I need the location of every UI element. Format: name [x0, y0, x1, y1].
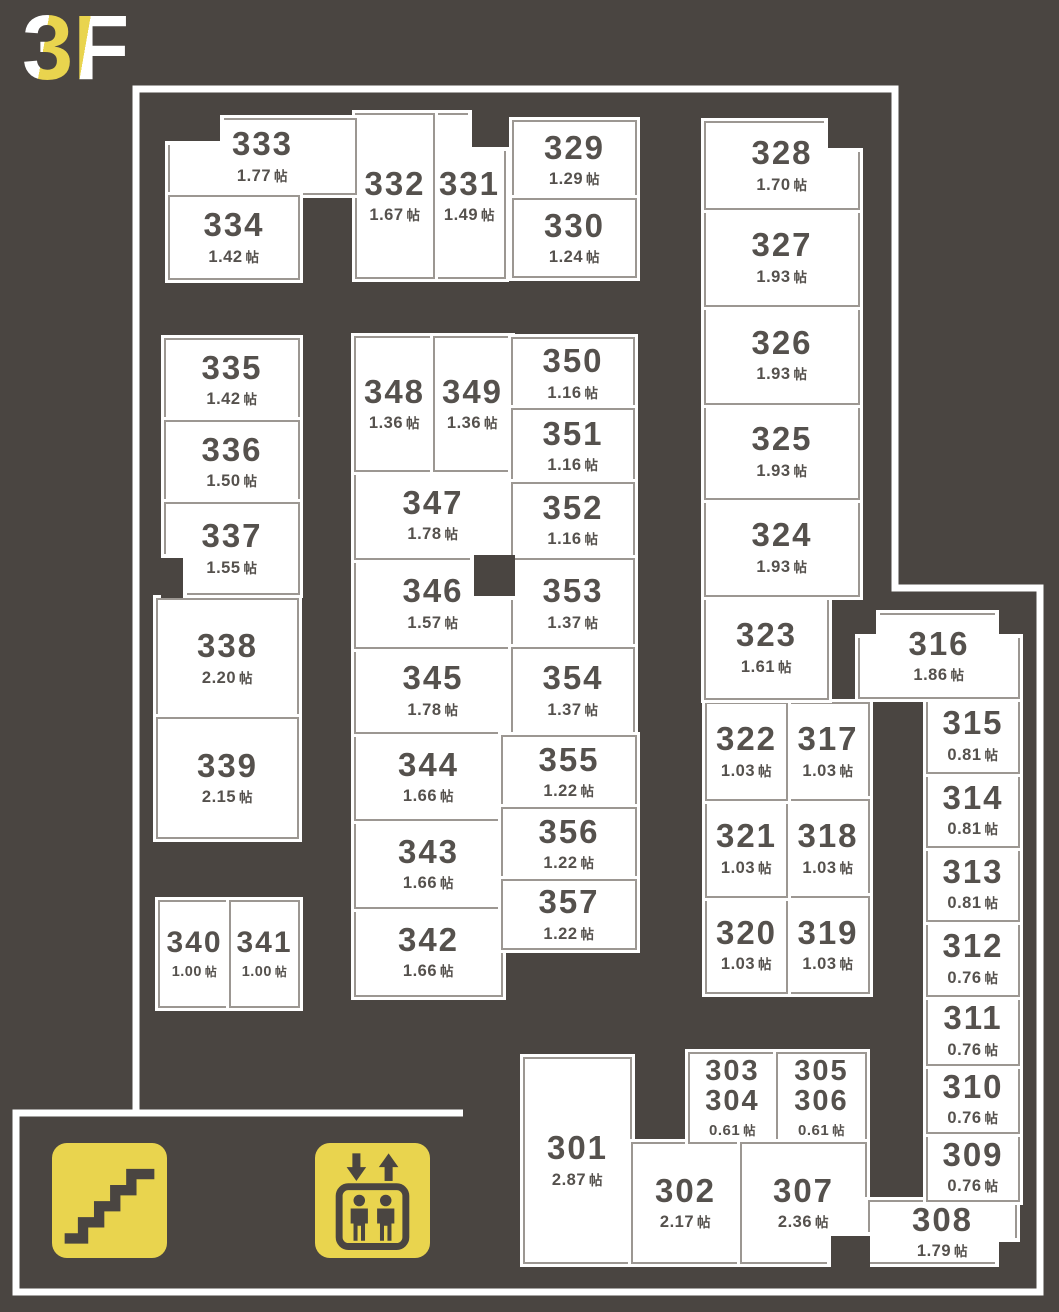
room-size-value: 0.76	[947, 1177, 981, 1196]
room-357: 357 1.22帖	[503, 881, 635, 948]
room-size-value: 1.86	[913, 666, 947, 685]
room-size-value: 2.17	[660, 1213, 694, 1232]
room-size: 1.24帖	[549, 246, 600, 267]
room-size-unit: 帖	[589, 1169, 603, 1189]
room-number: 323	[736, 618, 797, 652]
room-size: 1.66帖	[403, 785, 454, 806]
room-size-value: 1.49	[444, 206, 478, 225]
room-size-unit: 帖	[840, 857, 854, 877]
room-size: 1.78帖	[407, 523, 458, 544]
room-325: 325 1.93帖	[706, 405, 858, 498]
room-size: 1.67帖	[369, 204, 420, 225]
room-size: 2.17帖	[660, 1211, 711, 1232]
room-size: 2.20帖	[202, 667, 253, 688]
room-size-value: 1.66	[403, 787, 437, 806]
room-size-unit: 帖	[985, 1175, 999, 1195]
room-number: 310	[942, 1070, 1003, 1104]
room-number: 339	[197, 749, 258, 783]
room-number: 355	[538, 743, 599, 777]
room-size-value: 1.03	[721, 762, 755, 781]
room-size: 1.00帖	[172, 963, 218, 980]
room-size-unit: 帖	[244, 388, 258, 408]
room-number: 324	[751, 518, 812, 552]
room-size: 1.79帖	[917, 1240, 968, 1261]
room-number-secondary: 306	[794, 1087, 848, 1117]
room-327: 327 1.93帖	[706, 210, 858, 305]
room-size-unit: 帖	[440, 872, 454, 892]
room-size: 1.37帖	[547, 699, 598, 720]
room-size-unit: 帖	[794, 556, 808, 576]
room-344: 344 1.66帖	[356, 735, 501, 819]
room-size-unit: 帖	[586, 246, 600, 266]
room-number: 338	[197, 629, 258, 663]
room-size: 1.36帖	[447, 412, 498, 433]
room-size-value: 1.66	[403, 962, 437, 981]
room-size-unit: 帖	[985, 967, 999, 987]
room-number: 314	[942, 781, 1003, 815]
room-size-unit: 帖	[586, 168, 600, 188]
room-number: 309	[942, 1138, 1003, 1172]
room-size-value: 2.36	[778, 1213, 812, 1232]
room-size-unit: 帖	[758, 760, 772, 780]
room-number: 352	[542, 491, 603, 525]
room-size-value: 1.22	[543, 854, 577, 873]
room-number: 356	[538, 815, 599, 849]
room-size-value: 1.70	[756, 176, 790, 195]
room-size: 1.86帖	[913, 664, 964, 685]
room-number: 308	[912, 1203, 973, 1237]
room-size-value: 1.16	[547, 456, 581, 475]
room-336: 336 1.50帖	[166, 422, 298, 502]
room-337-notch-bl	[161, 554, 187, 598]
room-size-unit: 帖	[985, 892, 999, 912]
room-size-value: 1.42	[208, 248, 242, 267]
room-size: 1.37帖	[547, 612, 598, 633]
room-number: 315	[942, 706, 1003, 740]
room-number: 347	[402, 486, 463, 520]
room-size-unit: 帖	[585, 382, 599, 402]
room-size: 1.78帖	[407, 699, 458, 720]
room-size-value: 1.36	[447, 414, 481, 433]
room-size-value: 2.15	[202, 788, 236, 807]
room-size-unit: 帖	[585, 612, 599, 632]
room-size: 1.57帖	[407, 612, 458, 633]
room-size-unit: 帖	[840, 760, 854, 780]
room-size-value: 1.66	[403, 874, 437, 893]
room-size-value: 0.61	[798, 1122, 829, 1139]
room-316-notch-tl	[855, 610, 880, 638]
room-size-unit: 帖	[239, 667, 253, 687]
room-332: 332 1.67帖	[357, 115, 433, 277]
room-number: 327	[751, 228, 812, 262]
room-333: 333 1.77帖	[170, 120, 355, 193]
room-size-value: 1.03	[721, 859, 755, 878]
room-size: 0.76帖	[947, 1107, 998, 1128]
room-size: 1.93帖	[756, 363, 807, 384]
room-size: 0.76帖	[947, 967, 998, 988]
room-size: 1.16帖	[547, 454, 598, 475]
room-size: 2.87帖	[552, 1169, 603, 1190]
room-size-unit: 帖	[985, 744, 999, 764]
room-size: 1.00帖	[242, 963, 288, 980]
room-326: 326 1.93帖	[706, 307, 858, 403]
room-size-unit: 帖	[794, 460, 808, 480]
room-size-value: 1.03	[802, 859, 836, 878]
room-size-value: 0.76	[947, 1109, 981, 1128]
room-number: 344	[398, 748, 459, 782]
room-308: 308 1.79帖	[870, 1202, 1015, 1262]
room-324: 324 1.93帖	[706, 500, 858, 595]
room-size: 1.93帖	[756, 266, 807, 287]
room-size-unit: 帖	[758, 857, 772, 877]
room-302: 302 2.17帖	[633, 1144, 738, 1262]
room-number: 325	[751, 422, 812, 456]
room-346: 346 1.57帖	[356, 560, 510, 647]
room-size-value: 1.93	[756, 558, 790, 577]
room-size-unit: 帖	[840, 953, 854, 973]
room-number: 322	[716, 722, 777, 756]
room-size-unit: 帖	[585, 454, 599, 474]
room-number: 335	[201, 351, 262, 385]
room-number: 349	[442, 375, 503, 409]
stairs-icon	[52, 1143, 167, 1258]
room-size: 0.81帖	[947, 892, 998, 913]
room-315: 315 0.81帖	[928, 699, 1018, 772]
room-size-unit: 帖	[406, 412, 420, 432]
room-size-unit: 帖	[954, 1240, 968, 1260]
room-size: 1.93帖	[756, 556, 807, 577]
room-330: 330 1.24帖	[514, 200, 635, 276]
room-size-value: 1.78	[407, 525, 441, 544]
room-312: 312 0.76帖	[928, 922, 1018, 995]
room-size: 1.03帖	[721, 857, 772, 878]
room-size-value: 1.37	[547, 701, 581, 720]
room-size-value: 1.22	[543, 782, 577, 801]
room-305-306: 305 306 0.61帖	[778, 1054, 865, 1142]
room-340: 340 1.00帖	[160, 902, 229, 1006]
room-size-value: 1.93	[756, 365, 790, 384]
room-number: 337	[201, 519, 262, 553]
room-number: 353	[542, 574, 603, 608]
room-size-unit: 帖	[244, 557, 258, 577]
room-number: 311	[943, 1001, 1002, 1035]
room-number: 326	[751, 326, 812, 360]
room-number: 346	[402, 574, 463, 608]
room-316: 316 1.86帖	[860, 615, 1018, 697]
room-308-notch-br	[995, 1238, 1020, 1267]
room-number: 341	[236, 928, 292, 959]
room-size-unit: 帖	[484, 412, 498, 432]
room-number: 331	[439, 167, 500, 201]
room-size-unit: 帖	[581, 852, 595, 872]
room-size: 0.76帖	[947, 1039, 998, 1060]
room-number: 330	[544, 209, 605, 243]
room-size: 1.50帖	[206, 470, 257, 491]
room-size-unit: 帖	[407, 204, 421, 224]
room-320: 320 1.03帖	[707, 898, 786, 992]
room-size-value: 1.78	[407, 701, 441, 720]
room-size-unit: 帖	[244, 470, 258, 490]
room-size-value: 1.93	[756, 462, 790, 481]
room-size-unit: 帖	[585, 699, 599, 719]
room-size: 1.42帖	[208, 246, 259, 267]
room-size: 1.03帖	[721, 953, 772, 974]
room-size: 1.93帖	[756, 460, 807, 481]
room-341: 341 1.00帖	[231, 902, 298, 1006]
room-size: 2.15帖	[202, 786, 253, 807]
room-number: 351	[542, 417, 603, 451]
room-size-unit: 帖	[815, 1211, 829, 1231]
room-347: 347 1.78帖	[356, 472, 510, 558]
room-size-unit: 帖	[778, 656, 792, 676]
room-size: 1.77帖	[237, 165, 288, 186]
room-size-unit: 帖	[481, 204, 495, 224]
room-size-unit: 帖	[246, 246, 260, 266]
room-size-unit: 帖	[585, 528, 599, 548]
room-338: 338 2.20帖	[158, 600, 297, 717]
room-size-unit: 帖	[985, 1107, 999, 1127]
room-314: 314 0.81帖	[928, 774, 1018, 846]
room-size-unit: 帖	[275, 963, 287, 980]
room-size: 0.81帖	[947, 744, 998, 765]
room-size-unit: 帖	[205, 963, 217, 980]
room-size-value: 0.81	[947, 820, 981, 839]
room-number: 348	[364, 375, 425, 409]
room-size-value: 1.03	[721, 955, 755, 974]
room-size-value: 0.81	[947, 894, 981, 913]
room-size: 2.36帖	[778, 1211, 829, 1232]
room-size-value: 1.03	[802, 955, 836, 974]
room-329: 329 1.29帖	[514, 122, 635, 198]
room-size-unit: 帖	[440, 960, 454, 980]
room-321: 321 1.03帖	[707, 801, 786, 896]
room-331-notch-tr	[468, 110, 509, 151]
room-number: 316	[908, 627, 969, 661]
room-number: 317	[797, 722, 858, 756]
room-355: 355 1.22帖	[503, 737, 635, 807]
room-319: 319 1.03帖	[788, 898, 868, 992]
room-size-unit: 帖	[794, 363, 808, 383]
room-349: 349 1.36帖	[435, 338, 510, 470]
room-size-unit: 帖	[697, 1211, 711, 1231]
room-size: 1.03帖	[802, 953, 853, 974]
room-size-unit: 帖	[445, 699, 459, 719]
room-350: 350 1.16帖	[513, 339, 633, 408]
room-337: 337 1.55帖	[166, 504, 298, 593]
room-number: 302	[655, 1174, 716, 1208]
room-331: 331 1.49帖	[435, 115, 504, 277]
room-size-value: 1.57	[407, 614, 441, 633]
room-size: 1.42帖	[206, 388, 257, 409]
room-size: 0.61帖	[709, 1121, 756, 1139]
room-size-value: 1.55	[206, 559, 240, 578]
room-356: 356 1.22帖	[503, 809, 635, 879]
room-number: 336	[201, 433, 262, 467]
room-size: 1.49帖	[444, 204, 495, 225]
room-size-value: 1.67	[369, 206, 403, 225]
room-size-value: 1.03	[802, 762, 836, 781]
room-328-notch-tr	[824, 118, 863, 152]
room-size-value: 1.37	[547, 614, 581, 633]
room-size-value: 1.61	[741, 658, 775, 677]
room-size: 0.81帖	[947, 818, 998, 839]
room-size-unit: 帖	[581, 923, 595, 943]
room-size: 1.29帖	[549, 168, 600, 189]
room-size: 1.16帖	[547, 528, 598, 549]
room-309: 309 0.76帖	[928, 1134, 1018, 1200]
room-size-unit: 帖	[440, 785, 454, 805]
room-size-value: 2.87	[552, 1171, 586, 1190]
room-size: 1.03帖	[721, 760, 772, 781]
room-number: 318	[797, 819, 858, 853]
room-number: 329	[544, 131, 605, 165]
room-size-unit: 帖	[985, 1039, 999, 1059]
room-number: 340	[166, 928, 222, 959]
room-size: 1.22帖	[543, 780, 594, 801]
room-number: 320	[716, 916, 777, 950]
room-353: 353 1.37帖	[513, 560, 633, 647]
room-size-unit: 帖	[832, 1121, 845, 1139]
room-size: 0.76帖	[947, 1175, 998, 1196]
room-size: 1.66帖	[403, 872, 454, 893]
room-size-value: 0.76	[947, 1041, 981, 1060]
room-size: 1.22帖	[543, 852, 594, 873]
room-346-notch-tr	[470, 555, 515, 600]
room-310: 310 0.76帖	[928, 1066, 1018, 1132]
room-354: 354 1.37帖	[513, 649, 633, 732]
room-size-value: 1.22	[543, 925, 577, 944]
room-number: 307	[773, 1174, 834, 1208]
room-size-unit: 帖	[581, 780, 595, 800]
room-number: 333	[232, 127, 293, 161]
room-number: 334	[203, 208, 264, 242]
room-size-value: 1.16	[547, 384, 581, 403]
room-size-unit: 帖	[985, 818, 999, 838]
room-size-unit: 帖	[743, 1121, 756, 1139]
room-size-unit: 帖	[239, 786, 253, 806]
room-number: 328	[751, 136, 812, 170]
room-size: 1.36帖	[369, 412, 420, 433]
rooms-layer: 301 2.87帖 302 2.17帖 303 304 0.61帖 305 30…	[0, 0, 1059, 1312]
room-size-value: 1.16	[547, 530, 581, 549]
room-351: 351 1.16帖	[513, 410, 633, 482]
room-number: 301	[547, 1131, 608, 1165]
room-size-value: 2.20	[202, 669, 236, 688]
room-number: 332	[364, 167, 425, 201]
room-size: 1.55帖	[206, 557, 257, 578]
room-size-value: 1.42	[206, 390, 240, 409]
room-343: 343 1.66帖	[356, 821, 501, 907]
room-number: 303	[705, 1057, 759, 1087]
room-size-value: 1.29	[549, 170, 583, 189]
room-339: 339 2.15帖	[158, 719, 297, 837]
room-number: 343	[398, 835, 459, 869]
room-size-unit: 帖	[758, 953, 772, 973]
room-size: 0.61帖	[798, 1121, 845, 1139]
room-333-notch-tl	[165, 115, 224, 145]
room-number: 354	[542, 661, 603, 695]
room-size-value: 0.61	[709, 1122, 740, 1139]
room-number: 342	[398, 923, 459, 957]
room-size-unit: 帖	[445, 523, 459, 543]
room-307: 307 2.36帖	[742, 1144, 865, 1262]
room-number: 313	[942, 855, 1003, 889]
room-size-value: 1.00	[172, 964, 202, 980]
room-number: 305	[794, 1057, 848, 1087]
room-335: 335 1.42帖	[166, 340, 298, 420]
room-number: 321	[716, 819, 777, 853]
room-size-unit: 帖	[794, 174, 808, 194]
room-size-unit: 帖	[794, 266, 808, 286]
room-size: 1.03帖	[802, 857, 853, 878]
room-307-notch-br	[827, 1232, 870, 1267]
room-334: 334 1.42帖	[170, 197, 298, 278]
room-342: 342 1.66帖	[356, 909, 501, 995]
room-size-value: 1.79	[917, 1242, 951, 1261]
room-323: 323 1.61帖	[706, 597, 827, 698]
room-size-value: 1.24	[549, 248, 583, 267]
room-311: 311 0.76帖	[928, 997, 1018, 1064]
room-size-unit: 帖	[951, 664, 965, 684]
room-number: 312	[942, 929, 1003, 963]
room-316-notch-tr	[995, 610, 1023, 638]
room-size: 1.22帖	[543, 923, 594, 944]
room-number: 357	[538, 885, 599, 919]
room-303-304: 303 304 0.61帖	[690, 1054, 775, 1142]
room-size-value: 0.81	[947, 746, 981, 765]
room-size: 1.16帖	[547, 382, 598, 403]
room-size-unit: 帖	[445, 612, 459, 632]
room-328: 328 1.70帖	[706, 123, 858, 208]
room-size: 1.03帖	[802, 760, 853, 781]
room-size-value: 1.00	[242, 964, 272, 980]
room-size-value: 0.76	[947, 969, 981, 988]
room-size-value: 1.93	[756, 268, 790, 287]
room-size: 1.61帖	[741, 656, 792, 677]
room-352: 352 1.16帖	[513, 484, 633, 556]
room-322: 322 1.03帖	[707, 704, 786, 799]
room-size-unit: 帖	[274, 165, 288, 185]
room-size: 1.66帖	[403, 960, 454, 981]
room-301: 301 2.87帖	[525, 1059, 630, 1262]
room-317: 317 1.03帖	[788, 704, 868, 799]
room-345: 345 1.78帖	[356, 649, 510, 732]
room-313: 313 0.81帖	[928, 848, 1018, 920]
room-number-secondary: 304	[705, 1087, 759, 1117]
floor-map: 3F 301 2.87帖 302 2.17帖 303 304 0.61帖 305…	[0, 0, 1059, 1312]
room-348: 348 1.36帖	[356, 338, 433, 470]
elevator-icon	[315, 1143, 430, 1258]
room-size-value: 1.36	[369, 414, 403, 433]
room-number: 319	[797, 916, 858, 950]
room-size-value: 1.77	[237, 167, 271, 186]
room-size-value: 1.50	[206, 472, 240, 491]
room-number: 345	[402, 661, 463, 695]
room-size: 1.70帖	[756, 174, 807, 195]
room-318: 318 1.03帖	[788, 801, 868, 896]
room-number: 350	[542, 344, 603, 378]
